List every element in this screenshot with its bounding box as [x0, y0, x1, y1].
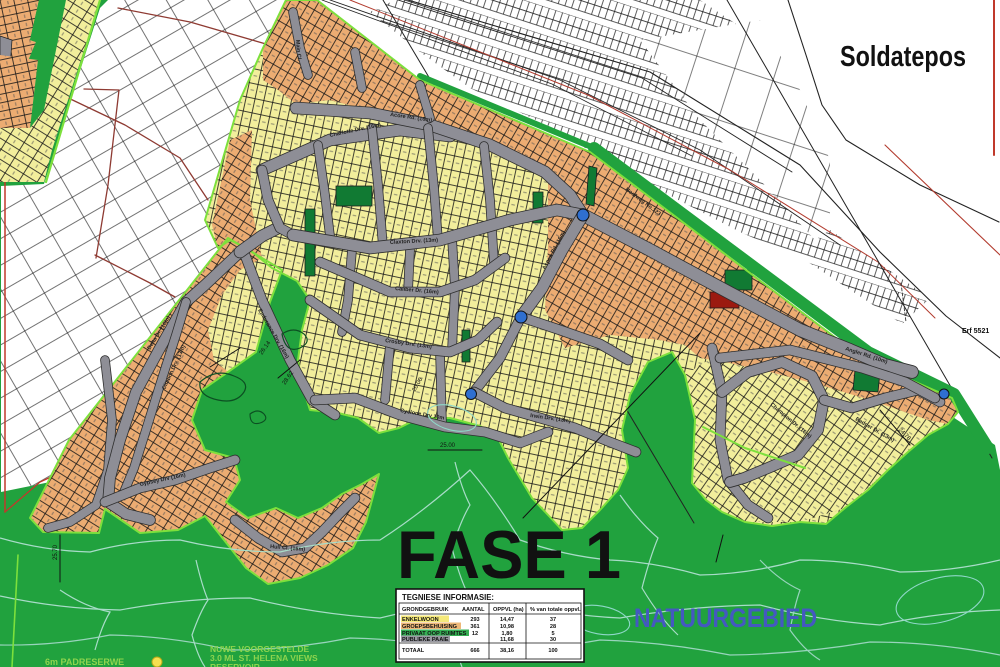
svg-text:FASE 1: FASE 1: [397, 517, 621, 593]
svg-text:100: 100: [548, 648, 557, 654]
svg-text:AANTAL: AANTAL: [462, 607, 485, 613]
svg-text:30: 30: [550, 637, 556, 643]
svg-text:RESERVOIR: RESERVOIR: [210, 662, 260, 667]
svg-text:Erf 5521: Erf 5521: [962, 328, 989, 335]
svg-text:14,47: 14,47: [500, 617, 514, 623]
svg-text:6m PADRESERWE: 6m PADRESERWE: [45, 657, 124, 667]
svg-text:361: 361: [470, 624, 479, 630]
svg-text:TEGNIESE INFORMASIE:: TEGNIESE INFORMASIE:: [402, 592, 494, 602]
svg-text:% van totale oppvl.: % van totale oppvl.: [530, 607, 581, 613]
svg-text:11,68: 11,68: [500, 637, 514, 643]
svg-text:OPPVL (ha): OPPVL (ha): [493, 607, 524, 613]
svg-text:25.00: 25.00: [440, 443, 456, 449]
svg-text:TOTAAL: TOTAAL: [402, 648, 425, 654]
svg-text:28: 28: [550, 624, 556, 630]
svg-text:25.70: 25.70: [53, 544, 59, 560]
svg-text:37: 37: [550, 617, 556, 623]
svg-text:NATUURGEBIED: NATUURGEBIED: [634, 603, 817, 633]
svg-text:Soldatepos: Soldatepos: [840, 41, 966, 73]
svg-text:293: 293: [470, 617, 479, 623]
svg-text:666: 666: [470, 648, 479, 654]
svg-text:10,98: 10,98: [500, 624, 514, 630]
svg-text:GROEPSBEHUISING: GROEPSBEHUISING: [402, 624, 457, 630]
svg-text:ENKELWOON: ENKELWOON: [402, 617, 439, 623]
svg-text:PUBLIEKE PAAIE: PUBLIEKE PAAIE: [402, 637, 449, 643]
svg-text:12: 12: [472, 631, 478, 637]
svg-text:38,16: 38,16: [500, 648, 514, 654]
svg-text:GRONDGEBRUIK: GRONDGEBRUIK: [402, 607, 449, 613]
